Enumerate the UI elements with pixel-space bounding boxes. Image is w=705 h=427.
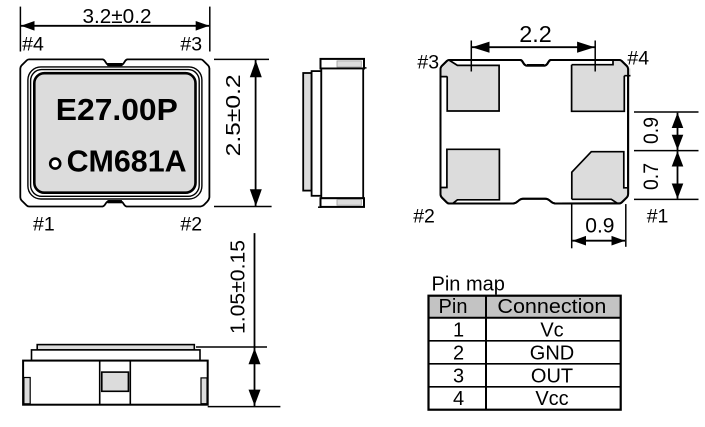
svg-text:3: 3: [453, 365, 464, 387]
svg-text:CM681A: CM681A: [67, 143, 187, 178]
svg-text:Connection: Connection: [497, 296, 606, 318]
svg-text:E27.00P: E27.00P: [56, 92, 178, 127]
svg-text:3.2±0.2: 3.2±0.2: [83, 6, 152, 28]
svg-text:2: 2: [453, 342, 464, 364]
svg-text:4: 4: [453, 388, 464, 410]
svg-text:#2: #2: [180, 213, 202, 235]
svg-text:2.5±0.2: 2.5±0.2: [223, 74, 245, 156]
svg-text:#1: #1: [33, 213, 55, 235]
svg-text:0.9: 0.9: [585, 214, 614, 237]
svg-text:#3: #3: [180, 33, 202, 55]
svg-text:#1: #1: [647, 205, 669, 227]
svg-text:Pin: Pin: [439, 296, 468, 318]
svg-text:#2: #2: [413, 205, 435, 227]
svg-text:2.2: 2.2: [519, 21, 552, 47]
svg-text:Pin map: Pin map: [432, 274, 505, 296]
svg-text:1: 1: [453, 319, 464, 341]
svg-text:#4: #4: [627, 47, 649, 69]
svg-text:OUT: OUT: [531, 365, 573, 387]
svg-text:GND: GND: [530, 342, 574, 364]
svg-text:0.9: 0.9: [640, 117, 663, 144]
svg-text:1.05±0.15: 1.05±0.15: [228, 240, 250, 334]
svg-text:0.7: 0.7: [640, 163, 663, 190]
svg-text:Vc: Vc: [540, 319, 563, 341]
svg-text:#3: #3: [417, 51, 439, 73]
svg-text:#4: #4: [22, 33, 44, 55]
svg-text:Vcc: Vcc: [535, 388, 568, 410]
